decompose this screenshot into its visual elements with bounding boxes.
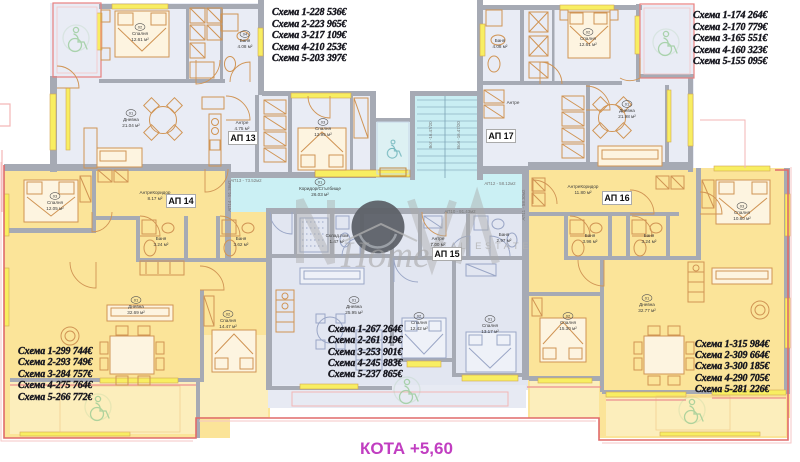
svg-text:Баня: Баня (644, 233, 655, 238)
svg-text:Баня: Баня (240, 38, 251, 43)
svg-text:12.95 м²: 12.95 м² (314, 132, 332, 137)
svg-text:Склад.пом: Склад.пом (326, 233, 349, 238)
svg-text:Спалня: Спалня (580, 36, 597, 41)
svg-text:12.42 м²: 12.42 м² (410, 326, 428, 331)
svg-text:01: 01 (129, 111, 134, 116)
svg-text:04: 04 (243, 32, 248, 37)
svg-text:02: 02 (566, 314, 571, 319)
svg-text:10.80 м²: 10.80 м² (733, 216, 751, 221)
svg-text:02: 02 (226, 312, 231, 317)
svg-text:12.61 м²: 12.61 м² (131, 37, 149, 42)
svg-text:Антре: Антре (432, 236, 445, 241)
svg-text:01: 01 (625, 102, 630, 107)
svg-text:25.95 м²: 25.95 м² (345, 310, 363, 315)
svg-text:03: 03 (321, 120, 326, 125)
svg-text:11.80 м²: 11.80 м² (574, 190, 592, 195)
svg-text:26.03 м²: 26.03 м² (311, 192, 329, 197)
svg-text:01: 01 (645, 296, 650, 301)
svg-text:Дневна: Дневна (619, 108, 635, 113)
svg-text:Баня: Баня (495, 38, 506, 43)
svg-text:АП10 - 91.43м2: АП10 - 91.43м2 (444, 209, 476, 214)
svg-text:АП11 - 58.30м2: АП11 - 58.30м2 (521, 189, 526, 220)
svg-text:21.04 м²: 21.04 м² (122, 123, 140, 128)
svg-text:Спалня: Спалня (482, 323, 499, 328)
svg-text:Спалня: Спалня (734, 210, 751, 215)
svg-text:8.17 м²: 8.17 м² (148, 196, 163, 201)
svg-text:Спалня: Спалня (47, 200, 64, 205)
svg-text:Дневна: Дневна (639, 302, 655, 307)
svg-text:3.24 м²: 3.24 м² (642, 239, 657, 244)
svg-text:02: 02 (417, 314, 422, 319)
svg-text:4.08 м²: 4.08 м² (238, 44, 253, 49)
svg-text:Вот -16.47/20: Вот -16.47/20 (428, 121, 433, 149)
svg-text:АП13 - 73.52м2: АП13 - 73.52м2 (230, 178, 262, 183)
svg-text:32.69 м²: 32.69 м² (127, 310, 145, 315)
svg-text:АП12 - 58.12м2: АП12 - 58.12м2 (484, 181, 516, 186)
svg-text:03: 03 (53, 194, 58, 199)
svg-text:Спалня: Спалня (132, 31, 149, 36)
svg-text:Вол -16.47/20: Вол -16.47/20 (456, 121, 461, 149)
svg-text:15.30 м²: 15.30 м² (559, 326, 577, 331)
svg-text:Дневна: Дневна (128, 304, 144, 309)
svg-text:Спалня: Спалня (220, 318, 237, 323)
svg-text:Спалня: Спалня (315, 126, 332, 131)
svg-text:3.24 м²: 3.24 м² (154, 242, 169, 247)
svg-text:21.98 м²: 21.98 м² (618, 114, 636, 119)
svg-text:02: 02 (586, 30, 591, 35)
svg-text:Спалня: Спалня (560, 320, 577, 325)
svg-text:3.96 м²: 3.96 м² (583, 239, 598, 244)
svg-text:Баня: Баня (585, 233, 596, 238)
svg-text:АнтреКоридор: АнтреКоридор (568, 184, 599, 189)
svg-text:01: 01 (318, 180, 323, 185)
svg-text:02: 02 (138, 25, 143, 30)
svg-text:Коридор/Стълбище: Коридор/Стълбище (299, 186, 341, 191)
svg-text:12.61 м²: 12.61 м² (579, 42, 597, 47)
svg-text:Антре: Антре (507, 100, 520, 105)
svg-text:01: 01 (352, 298, 357, 303)
svg-text:4.08 м²: 4.08 м² (493, 44, 508, 49)
svg-text:АП14 - 91.36м2: АП14 - 91.36м2 (227, 180, 232, 212)
svg-text:32.77 м²: 32.77 м² (638, 308, 656, 313)
svg-text:3.62 м²: 3.62 м² (234, 242, 249, 247)
svg-text:03: 03 (740, 204, 745, 209)
svg-text:Антре: Антре (236, 120, 249, 125)
svg-text:Дневна: Дневна (346, 304, 362, 309)
svg-text:Home: Home (340, 235, 429, 276)
svg-text:01: 01 (488, 317, 493, 322)
svg-text:Спалня: Спалня (411, 320, 428, 325)
svg-text:Баня: Баня (499, 232, 510, 237)
svg-text:12.05 м²: 12.05 м² (46, 206, 64, 211)
svg-text:13.17 м²: 13.17 м² (481, 329, 499, 334)
svg-text:2.97 м²: 2.97 м² (497, 238, 512, 243)
svg-text:01: 01 (134, 298, 139, 303)
svg-text:Баня: Баня (236, 236, 247, 241)
svg-text:1.47 м²: 1.47 м² (330, 239, 345, 244)
svg-text:Дневна: Дневна (123, 117, 139, 122)
svg-text:Баня: Баня (156, 236, 167, 241)
svg-text:14.47 м²: 14.47 м² (219, 324, 237, 329)
